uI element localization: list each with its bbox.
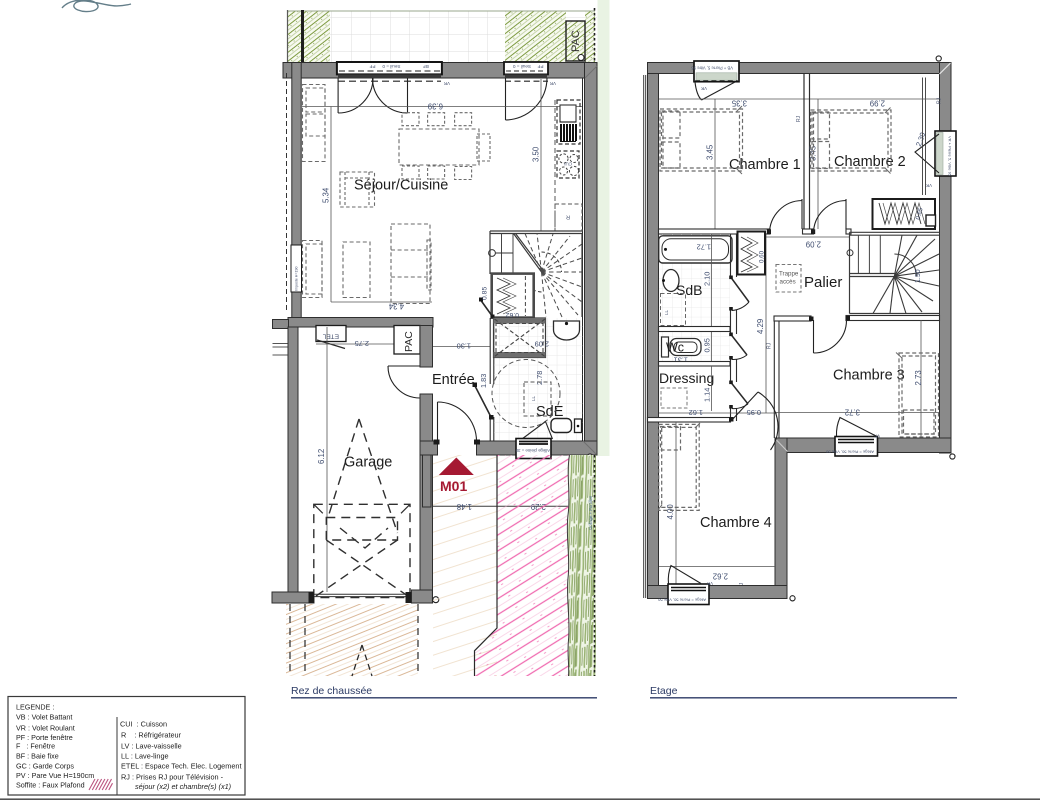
svg-text:2.78: 2.78: [535, 371, 544, 385]
svg-text:Soffite : Faux Plafond: Soffite : Faux Plafond: [16, 781, 85, 790]
svg-text:RJ : Prises RJ pour Télévision: RJ : Prises RJ pour Télévision -: [121, 773, 224, 782]
svg-text:VB + Pierre 5, Vitre 95: VB + Pierre 5, Vitre 95: [691, 66, 733, 71]
svg-text:0.60: 0.60: [759, 250, 766, 263]
svg-text:0.95: 0.95: [703, 338, 712, 352]
svg-text:Chambre 4: Chambre 4: [700, 515, 772, 531]
svg-text:Grillage + Portillon: Grillage + Portillon: [588, 495, 593, 530]
svg-text:ETEL: ETEL: [322, 333, 339, 340]
svg-text:VB : Volet Battant: VB : Volet Battant: [16, 713, 72, 722]
svg-text:Séjour/Cuisine: Séjour/Cuisine: [354, 178, 448, 194]
svg-text:Allège = Pierre 50, Vitre 50: Allège = Pierre 50, Vitre 50: [825, 450, 874, 455]
svg-text:2.73: 2.73: [914, 370, 923, 385]
svg-text:0.62: 0.62: [506, 311, 519, 318]
svg-text:RJ: RJ: [767, 342, 773, 349]
svg-text:0.85: 0.85: [482, 287, 489, 300]
svg-text:Entrée: Entrée: [432, 372, 475, 388]
svg-text:2.10: 2.10: [703, 272, 712, 286]
svg-text:Chambre 3: Chambre 3: [833, 368, 905, 384]
svg-text:F : Fenêtre: F : Fenêtre: [16, 742, 55, 751]
svg-text:Imposte H=190: Imposte H=190: [295, 267, 299, 291]
svg-text:2.99: 2.99: [870, 99, 885, 108]
svg-text:VR: VR: [707, 581, 713, 586]
svg-text:LL: LL: [664, 309, 669, 315]
svg-text:VR : Volet Roulant: VR : Volet Roulant: [16, 724, 75, 733]
svg-text:RJ: RJ: [796, 115, 802, 122]
svg-text:2.62: 2.62: [713, 572, 728, 581]
svg-text:ETEL : Espace Tech. Elec. Loge: ETEL : Espace Tech. Elec. Logement: [121, 762, 241, 771]
svg-text:LL : Lave-linge: LL : Lave-linge: [121, 752, 169, 761]
svg-text:BF : Baie fixe: BF : Baie fixe: [16, 752, 59, 761]
svg-text:LEGENDE :: LEGENDE :: [16, 703, 54, 712]
svg-text:1.14: 1.14: [703, 388, 712, 402]
svg-text:4.29: 4.29: [756, 319, 765, 334]
svg-text:4.00: 4.00: [666, 504, 675, 520]
svg-text:PV : Pare Vue H=190cm: PV : Pare Vue H=190cm: [16, 771, 94, 780]
svg-text:1.83: 1.83: [479, 374, 488, 388]
svg-text:PAC: PAC: [403, 331, 415, 352]
svg-text:4.34: 4.34: [388, 302, 404, 311]
svg-text:CUI: CUI: [564, 162, 572, 167]
svg-text:VR: VR: [926, 183, 932, 188]
svg-text:VR: VR: [701, 86, 707, 91]
svg-text:VR + Pierre 5, Vitre 95: VR + Pierre 5, Vitre 95: [948, 136, 953, 177]
svg-text:3.50: 3.50: [532, 146, 541, 162]
svg-text:PF: PF: [537, 64, 543, 69]
svg-text:accès: accès: [780, 279, 796, 286]
svg-text:Seuil = 0: Seuil = 0: [382, 64, 400, 69]
svg-text:Palier: Palier: [804, 274, 842, 291]
svg-text:SdB: SdB: [676, 282, 702, 298]
svg-text:1.30: 1.30: [457, 342, 471, 351]
svg-text:Allège = Pierre 50, Vitre 50: Allège = Pierre 50, Vitre 50: [657, 598, 706, 603]
svg-text:LV : Lave-vaisselle: LV : Lave-vaisselle: [121, 742, 182, 751]
svg-text:2.09: 2.09: [535, 340, 549, 349]
svg-text:Seuil = 0: Seuil = 0: [513, 64, 531, 69]
svg-text:1.90: 1.90: [915, 269, 922, 283]
svg-text:R: R: [566, 214, 570, 220]
svg-text:GC : Garde Corps: GC : Garde Corps: [16, 762, 74, 771]
svg-text:6.12: 6.12: [317, 449, 326, 464]
svg-text:3.45: 3.45: [706, 144, 715, 160]
svg-text:BF: BF: [423, 64, 429, 69]
svg-text:PAC: PAC: [570, 30, 582, 52]
svg-text:3.35: 3.35: [731, 99, 747, 108]
svg-text:PF: PF: [369, 64, 375, 69]
svg-text:6.39: 6.39: [428, 102, 443, 111]
svg-text:LL: LL: [531, 395, 536, 401]
svg-text:Trappe: Trappe: [779, 271, 799, 278]
svg-text:Etage: Etage: [650, 685, 678, 697]
svg-text:3.72: 3.72: [845, 408, 860, 417]
svg-text:Rez de chaussée: Rez de chaussée: [291, 685, 372, 697]
svg-text:VR: VR: [444, 81, 450, 86]
svg-text:0.95: 0.95: [747, 408, 761, 417]
svg-text:1.62: 1.62: [689, 408, 703, 417]
svg-text:RJ: RJ: [937, 97, 943, 104]
svg-text:Wc: Wc: [666, 341, 684, 355]
svg-text:1.72: 1.72: [697, 243, 711, 252]
svg-text:CUI : Cuisson: CUI : Cuisson: [120, 720, 167, 729]
svg-text:VR: VR: [550, 81, 556, 86]
svg-text:M01: M01: [440, 478, 467, 494]
svg-text:1.48: 1.48: [457, 502, 472, 511]
svg-text:Allège pleine = 30: Allège pleine = 30: [515, 448, 550, 453]
svg-text:2.09: 2.09: [806, 240, 821, 249]
svg-text:5.34: 5.34: [322, 187, 331, 203]
svg-text:Garage: Garage: [344, 455, 392, 471]
svg-text:Dressing: Dressing: [659, 370, 714, 386]
svg-text:séjour (x2) et chambre(s) (x1): séjour (x2) et chambre(s) (x1): [135, 782, 231, 791]
svg-text:R : Réfrigérateur: R : Réfrigérateur: [121, 731, 182, 740]
svg-text:2.75: 2.75: [355, 339, 369, 348]
